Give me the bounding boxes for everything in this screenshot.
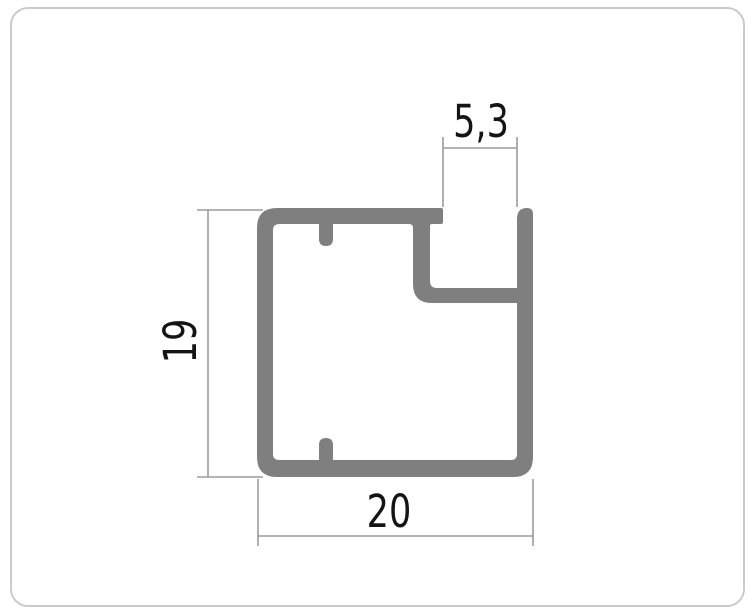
dim-lines-slot-width — [443, 137, 517, 207]
dim-label-slot-width: 5,3 — [426, 98, 535, 144]
dim-label-width: 20 — [334, 488, 443, 534]
dim-label-height: 19 — [157, 286, 203, 395]
dim-lines-height — [197, 210, 263, 477]
drawing-canvas: 5,3 19 20 — [0, 0, 754, 616]
profile-cross-section — [257, 208, 533, 477]
